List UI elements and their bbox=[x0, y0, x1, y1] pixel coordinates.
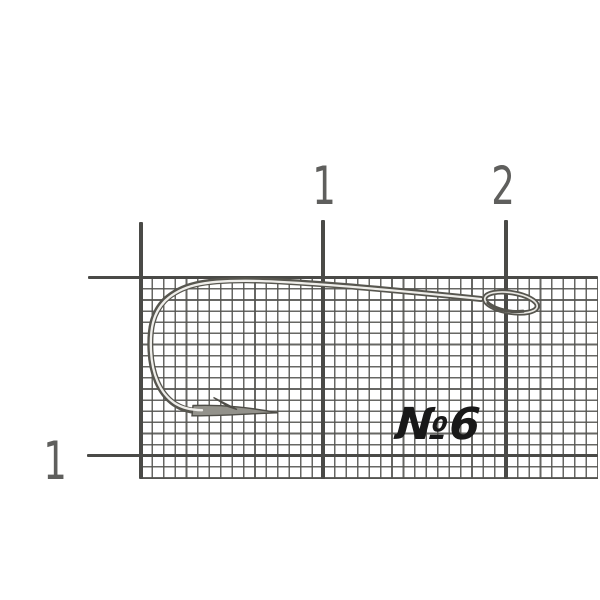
product-photo: 1 2 1 №6 bbox=[0, 0, 600, 600]
ruler-line-vertical-0 bbox=[139, 222, 142, 479]
ruler-line-vertical-1 bbox=[321, 220, 324, 479]
ruler-line-horizontal-1 bbox=[87, 454, 598, 457]
measurement-grid bbox=[140, 277, 598, 479]
ruler-line-horizontal-0 bbox=[88, 276, 598, 279]
ruler-label-top-2: 2 bbox=[491, 160, 515, 213]
ruler-label-left-1: 1 bbox=[43, 435, 67, 488]
hook-size-label: №6 bbox=[394, 403, 482, 447]
ruler-label-top-1: 1 bbox=[312, 160, 336, 213]
ruler-line-vertical-2 bbox=[504, 220, 507, 479]
